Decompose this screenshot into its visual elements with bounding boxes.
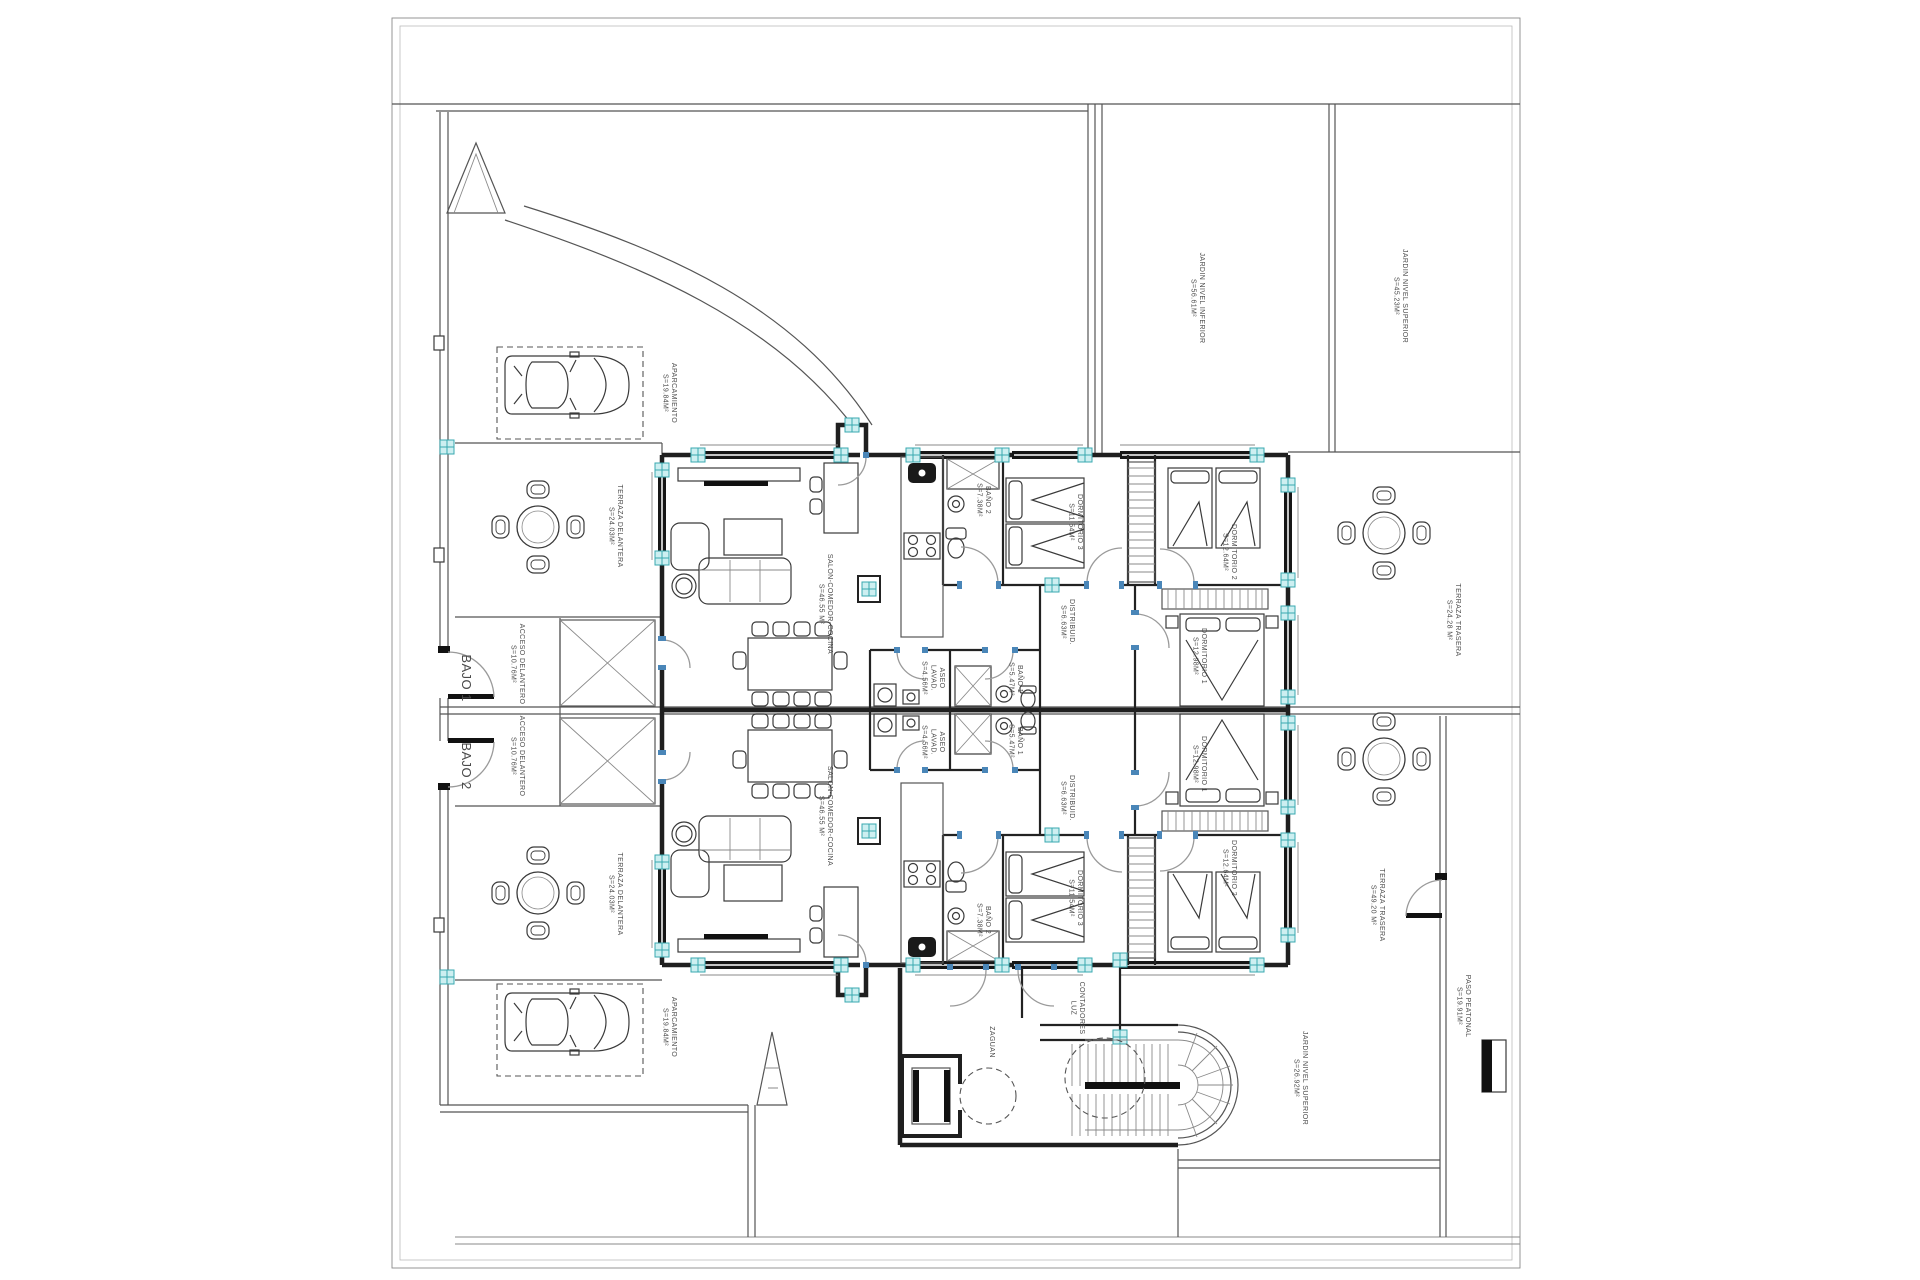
room-label-salon-comedor-bottom: SALON-COMEDOR-COCINAS=46.55 M²	[817, 766, 833, 866]
room-label-bano1-top: BAÑO 1S=5.47M²	[1007, 662, 1025, 696]
driveway	[447, 143, 872, 430]
room-label-bajo-2: BAJO 2	[459, 742, 474, 789]
room-label-terraza-trasera-top: TERRAZA TRASERAS=24.28 M²	[1445, 583, 1461, 656]
sheet-borders	[392, 18, 1520, 1268]
entry-canopy-top	[560, 620, 655, 706]
entry-canopy-bottom	[560, 718, 655, 804]
rear-terrace-table-top	[1338, 487, 1430, 579]
room-label-dormitorio1-top: DORMITORIO 1S=12.98M²	[1191, 628, 1207, 684]
front-terrace-table-top	[492, 481, 584, 573]
street-wall	[434, 112, 494, 1105]
room-label-terraza-delantera-bottom: TERRAZA DELANTERAS=24.03M²	[607, 852, 623, 935]
room-label-terraza-trasera-bottom: TERRAZA TRASERAS=49.20 M²	[1369, 868, 1385, 941]
room-label-aparcamiento-bottom: APARCAMIENTOS=19.84M²	[661, 997, 677, 1057]
staircase	[1065, 1025, 1238, 1145]
room-label-aseo-lavadero-bottom: ASEOLAVAD.S=4.56M²	[921, 725, 946, 759]
room-label-contadores-luz: CONTADORESLUZ	[1069, 982, 1085, 1035]
room-label-zaguan: ZAGUAN	[988, 1026, 995, 1058]
room-label-dormitorio1-bottom: DORMITORIO 1S=12.98M²	[1191, 736, 1207, 792]
room-label-dormitorio3-bottom: DORMITORIO 3S=11.54M²	[1067, 870, 1083, 926]
room-label-acceso-delantero-top: ACCESO DELANTEROS=10.76M²	[509, 624, 525, 705]
front-terrace-table-bottom	[492, 847, 584, 939]
room-label-bano2-top: BAÑO 2S=7.38M²	[975, 483, 993, 517]
room-label-bajo-1: BAJO 1	[459, 654, 474, 701]
room-label-jardin-nivel-superior-top: JARDIN NIVEL SUPERIORS=45.23M²	[1392, 249, 1408, 343]
street-ramp	[440, 1032, 787, 1237]
room-label-bano2-bottom: BAÑO 2S=7.38M²	[975, 903, 993, 937]
room-label-jardin-nivel-inferior: JARDIN NIVEL INFERIORS=56.61M²	[1189, 253, 1205, 344]
room-label-paso-peatonal: PASO PEATONALS=19.91M²	[1455, 975, 1471, 1038]
floor-plan-drawing: BAJO 1BAJO 2APARCAMIENTOS=19.84M²TERRAZA…	[0, 0, 1920, 1280]
room-label-dormitorio2-top: DORMITORIO 2S=12.64M²	[1221, 524, 1237, 580]
room-label-dormitorio3-top: DORMITORIO 3S=11.54M²	[1067, 494, 1083, 550]
turning-circle	[960, 1068, 1016, 1124]
rear-terrace-gate	[1406, 873, 1447, 918]
elevator	[902, 1056, 963, 1136]
room-label-acceso-delantero-bottom: ACCESO DELANTEROS=10.76M²	[509, 716, 525, 797]
room-label-aseo-lavadero-top: ASEOLAVAD.S=4.56M²	[921, 661, 946, 695]
room-label-terraza-delantera-top: TERRAZA DELANTERAS=24.03M²	[607, 484, 623, 567]
room-label-salon-comedor-top: SALON-COMEDOR-COCINAS=46.55 M²	[817, 554, 833, 654]
site-lines	[392, 104, 1520, 1237]
room-label-aparcamiento-top: APARCAMIENTOS=19.84M²	[661, 363, 677, 423]
room-label-distribuidor-top: DISTRIBUID.S=6.63M²	[1059, 599, 1075, 645]
parking-bay-top	[497, 347, 643, 439]
room-label-jardin-nivel-superior-bottom: JARDIN NIVEL SUPERIORS=26.92M²	[1292, 1031, 1308, 1125]
room-labels: BAJO 1BAJO 2APARCAMIENTOS=19.84M²TERRAZA…	[459, 249, 1471, 1125]
parking-bay-bottom	[497, 984, 643, 1076]
rear-terrace-table-bottom	[1338, 713, 1430, 805]
paso-bench	[1482, 1040, 1506, 1092]
room-label-bano1-bottom: BAÑO 1S=5.47M²	[1007, 724, 1025, 758]
room-label-distribuidor-bottom: DISTRIBUID.S=6.63M²	[1059, 775, 1075, 821]
